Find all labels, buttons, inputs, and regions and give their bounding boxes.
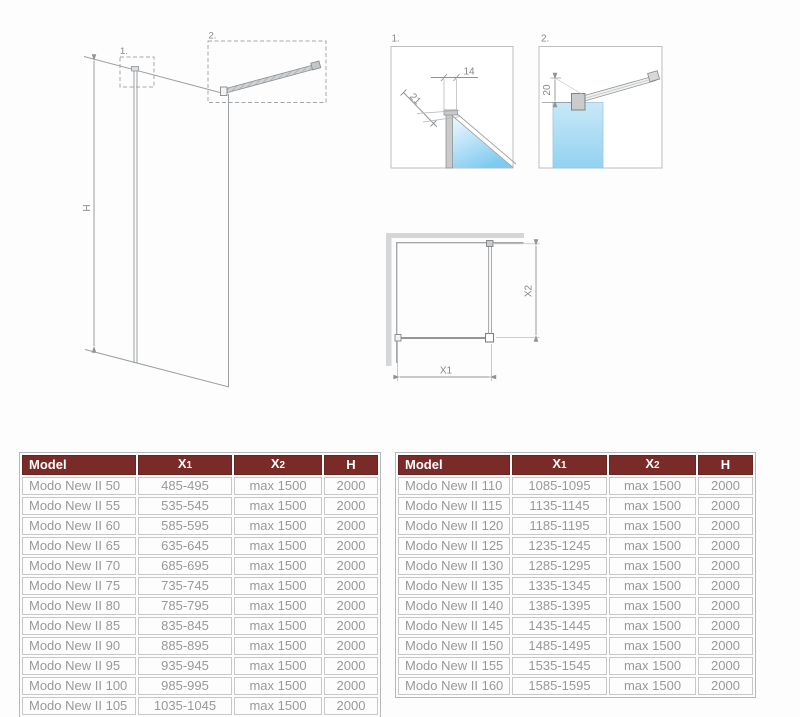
bar-wall-mount bbox=[311, 61, 321, 70]
table-row: Modo New II 100985-995max 15002000 bbox=[22, 677, 378, 695]
table-cell: 1535-1545 bbox=[512, 657, 607, 675]
table-cell: 885-895 bbox=[138, 637, 232, 655]
table-cell: 535-545 bbox=[138, 497, 232, 515]
table-cell: 2000 bbox=[698, 477, 753, 495]
detail-1-drawing: 1. 14 21 bbox=[391, 34, 516, 169]
table-cell: 1335-1345 bbox=[512, 577, 607, 595]
table-cell: 2000 bbox=[324, 677, 378, 695]
table-cell: 785-795 bbox=[138, 597, 232, 615]
table-cell: Modo New II 90 bbox=[22, 637, 136, 655]
table-cell: Modo New II 135 bbox=[398, 577, 510, 595]
table-cell: max 1500 bbox=[234, 577, 322, 595]
table-cell: max 1500 bbox=[234, 537, 322, 555]
table-cell: 1285-1295 bbox=[512, 557, 607, 575]
table-cell: max 1500 bbox=[609, 537, 696, 555]
dim-label-x1: X1 bbox=[440, 366, 453, 377]
table-cell: max 1500 bbox=[609, 477, 696, 495]
table-row: Modo New II 75735-745max 15002000 bbox=[22, 577, 378, 595]
top-view-drawing: X2 X1 bbox=[386, 233, 540, 381]
table-row: Modo New II 90885-895max 15002000 bbox=[22, 637, 378, 655]
bar-wall-bracket-plan bbox=[487, 241, 494, 247]
table-cell: max 1500 bbox=[609, 597, 696, 615]
table-row: Modo New II 95935-945max 15002000 bbox=[22, 657, 378, 675]
spec-sheet-page: H 1. 2. 1. bbox=[0, 0, 800, 717]
header-row: ModelX1X2H bbox=[22, 455, 378, 475]
table-cell: max 1500 bbox=[234, 697, 322, 715]
glass-clamp bbox=[572, 94, 586, 111]
table-cell: 2000 bbox=[324, 497, 378, 515]
table-cell: max 1500 bbox=[234, 477, 322, 495]
table-cell: 2000 bbox=[324, 557, 378, 575]
bar-fitting-plan bbox=[486, 334, 494, 343]
back-wall bbox=[386, 233, 524, 238]
table-row: Modo New II 1201185-1195max 15002000 bbox=[398, 517, 753, 535]
table-cell: Modo New II 115 bbox=[398, 497, 510, 515]
table-cell: Modo New II 130 bbox=[398, 557, 510, 575]
table-cell: max 1500 bbox=[234, 617, 322, 635]
table-cell: Modo New II 125 bbox=[398, 537, 510, 555]
table-cell: 2000 bbox=[698, 557, 753, 575]
table-cell: 2000 bbox=[324, 637, 378, 655]
header-cell: Model bbox=[22, 455, 136, 475]
table-cell: max 1500 bbox=[609, 517, 696, 535]
table-cell: 2000 bbox=[324, 597, 378, 615]
callout-label-2: 2. bbox=[209, 31, 217, 42]
table-cell: 2000 bbox=[698, 537, 753, 555]
table-cell: max 1500 bbox=[234, 497, 322, 515]
table-cell: 2000 bbox=[698, 597, 753, 615]
dim-label-h: H bbox=[82, 204, 93, 211]
table-cell: Modo New II 75 bbox=[22, 577, 136, 595]
dim-label-x2: X2 bbox=[524, 284, 535, 297]
table-row: Modo New II 60585-595max 15002000 bbox=[22, 517, 378, 535]
table-cell: max 1500 bbox=[609, 637, 696, 655]
table-cell: max 1500 bbox=[609, 617, 696, 635]
header-cell: H bbox=[698, 455, 753, 475]
table-cell: max 1500 bbox=[609, 577, 696, 595]
table-cell: 935-945 bbox=[138, 657, 232, 675]
front-view-drawing: H 1. 2. bbox=[82, 31, 326, 388]
table-row: Modo New II 1351335-1345max 15002000 bbox=[398, 577, 753, 595]
table-cell: max 1500 bbox=[234, 677, 322, 695]
support-bar bbox=[226, 65, 315, 94]
table-cell: max 1500 bbox=[234, 557, 322, 575]
table-cell: 1185-1195 bbox=[512, 517, 607, 535]
header-cell: X1 bbox=[138, 455, 232, 475]
table-cell: 1485-1495 bbox=[512, 637, 607, 655]
table-row: Modo New II 85835-845max 15002000 bbox=[22, 617, 378, 635]
table-cell: Modo New II 120 bbox=[398, 517, 510, 535]
table-cell: 2000 bbox=[324, 617, 378, 635]
table-cell: 1085-1095 bbox=[512, 477, 607, 495]
table-cell: 1385-1395 bbox=[512, 597, 607, 615]
table-cell: Modo New II 65 bbox=[22, 537, 136, 555]
table-cell: max 1500 bbox=[234, 657, 322, 675]
table-row: Modo New II 1451435-1445max 15002000 bbox=[398, 617, 753, 635]
table-cell: Modo New II 140 bbox=[398, 597, 510, 615]
dim-label-20: 20 bbox=[542, 84, 553, 96]
table-cell: 2000 bbox=[324, 537, 378, 555]
spec-table-right: ModelX1X2HModo New II 1101085-1095max 15… bbox=[395, 452, 756, 698]
table-cell: 2000 bbox=[324, 577, 378, 595]
wall-profile-plan bbox=[395, 335, 401, 342]
table-cell: 635-645 bbox=[138, 537, 232, 555]
top-bracket bbox=[132, 67, 139, 72]
table-row: Modo New II 65635-645max 15002000 bbox=[22, 537, 378, 555]
table-cell: 485-495 bbox=[138, 477, 232, 495]
table-cell: 2000 bbox=[324, 657, 378, 675]
table-cell: 2000 bbox=[698, 637, 753, 655]
header-cell: H bbox=[324, 455, 378, 475]
table-cell: max 1500 bbox=[234, 517, 322, 535]
table-cell: Modo New II 160 bbox=[398, 677, 510, 695]
detail-1-label: 1. bbox=[392, 34, 400, 45]
table-row: Modo New II 1151135-1145max 15002000 bbox=[398, 497, 753, 515]
table-row: Modo New II 1401385-1395max 15002000 bbox=[398, 597, 753, 615]
table-row: Modo New II 1501485-1495max 15002000 bbox=[398, 637, 753, 655]
table-cell: max 1500 bbox=[234, 637, 322, 655]
table-cell: 1585-1595 bbox=[512, 677, 607, 695]
table-cell: max 1500 bbox=[609, 497, 696, 515]
table-cell: Modo New II 100 bbox=[22, 677, 136, 695]
table-cell: 2000 bbox=[698, 617, 753, 635]
table-cell: 2000 bbox=[324, 477, 378, 495]
header-cell: X2 bbox=[234, 455, 322, 475]
table-cell: Modo New II 85 bbox=[22, 617, 136, 635]
table-cell: 1135-1145 bbox=[512, 497, 607, 515]
detail-2-drawing: 2. 20 bbox=[539, 34, 662, 169]
table-cell: 2000 bbox=[698, 677, 753, 695]
table-cell: max 1500 bbox=[609, 677, 696, 695]
side-wall bbox=[386, 233, 392, 366]
table-row: Modo New II 70685-695max 15002000 bbox=[22, 557, 378, 575]
callout-label-1: 1. bbox=[120, 46, 128, 57]
table-row: Modo New II 50485-495max 15002000 bbox=[22, 477, 378, 495]
bar-glass-fitting bbox=[221, 87, 228, 96]
table-cell: Modo New II 70 bbox=[22, 557, 136, 575]
table-row: Modo New II 1301285-1295max 15002000 bbox=[398, 557, 753, 575]
wall-profile bbox=[446, 112, 453, 168]
table-cell: Modo New II 105 bbox=[22, 697, 136, 715]
header-cell: X1 bbox=[512, 455, 607, 475]
table-row: Modo New II 1101085-1095max 15002000 bbox=[398, 477, 753, 495]
table-cell: Modo New II 150 bbox=[398, 637, 510, 655]
table-cell: 2000 bbox=[324, 697, 378, 715]
table-cell: Modo New II 50 bbox=[22, 477, 136, 495]
table-cell: 2000 bbox=[698, 497, 753, 515]
spec-table-left: ModelX1X2HModo New II 50485-495max 15002… bbox=[19, 452, 381, 717]
table-cell: Modo New II 155 bbox=[398, 657, 510, 675]
table-cell: 2000 bbox=[324, 517, 378, 535]
table-row: Modo New II 80785-795max 15002000 bbox=[22, 597, 378, 615]
table-cell: Modo New II 95 bbox=[22, 657, 136, 675]
table-cell: Modo New II 55 bbox=[22, 497, 136, 515]
technical-drawings: H 1. 2. 1. bbox=[0, 0, 800, 445]
table-cell: Modo New II 60 bbox=[22, 517, 136, 535]
table-cell: Modo New II 110 bbox=[398, 477, 510, 495]
table-cell: 1035-1045 bbox=[138, 697, 232, 715]
dim-label-14: 14 bbox=[463, 67, 475, 78]
table-cell: Modo New II 145 bbox=[398, 617, 510, 635]
header-cell: X2 bbox=[609, 455, 696, 475]
table-cell: 985-995 bbox=[138, 677, 232, 695]
table-cell: max 1500 bbox=[234, 597, 322, 615]
table-cell: 2000 bbox=[698, 577, 753, 595]
table-cell: Modo New II 80 bbox=[22, 597, 136, 615]
table-cell: 735-745 bbox=[138, 577, 232, 595]
header-row: ModelX1X2H bbox=[398, 455, 753, 475]
table-cell: 2000 bbox=[698, 657, 753, 675]
header-cell: Model bbox=[398, 455, 510, 475]
table-row: Modo New II 1551535-1545max 15002000 bbox=[398, 657, 753, 675]
table-row: Modo New II 1051035-1045max 15002000 bbox=[22, 697, 378, 715]
table-row: Modo New II 55535-545max 15002000 bbox=[22, 497, 378, 515]
table-cell: 835-845 bbox=[138, 617, 232, 635]
table-cell: 1235-1245 bbox=[512, 537, 607, 555]
detail-2-label: 2. bbox=[541, 34, 549, 45]
table-cell: 1435-1445 bbox=[512, 617, 607, 635]
glass-panel-edge bbox=[553, 103, 603, 169]
table-cell: 685-695 bbox=[138, 557, 232, 575]
table-cell: 2000 bbox=[698, 517, 753, 535]
table-row: Modo New II 1601585-1595max 15002000 bbox=[398, 677, 753, 695]
table-row: Modo New II 1251235-1245max 15002000 bbox=[398, 537, 753, 555]
table-cell: max 1500 bbox=[609, 657, 696, 675]
table-cell: max 1500 bbox=[609, 557, 696, 575]
table-cell: 585-595 bbox=[138, 517, 232, 535]
